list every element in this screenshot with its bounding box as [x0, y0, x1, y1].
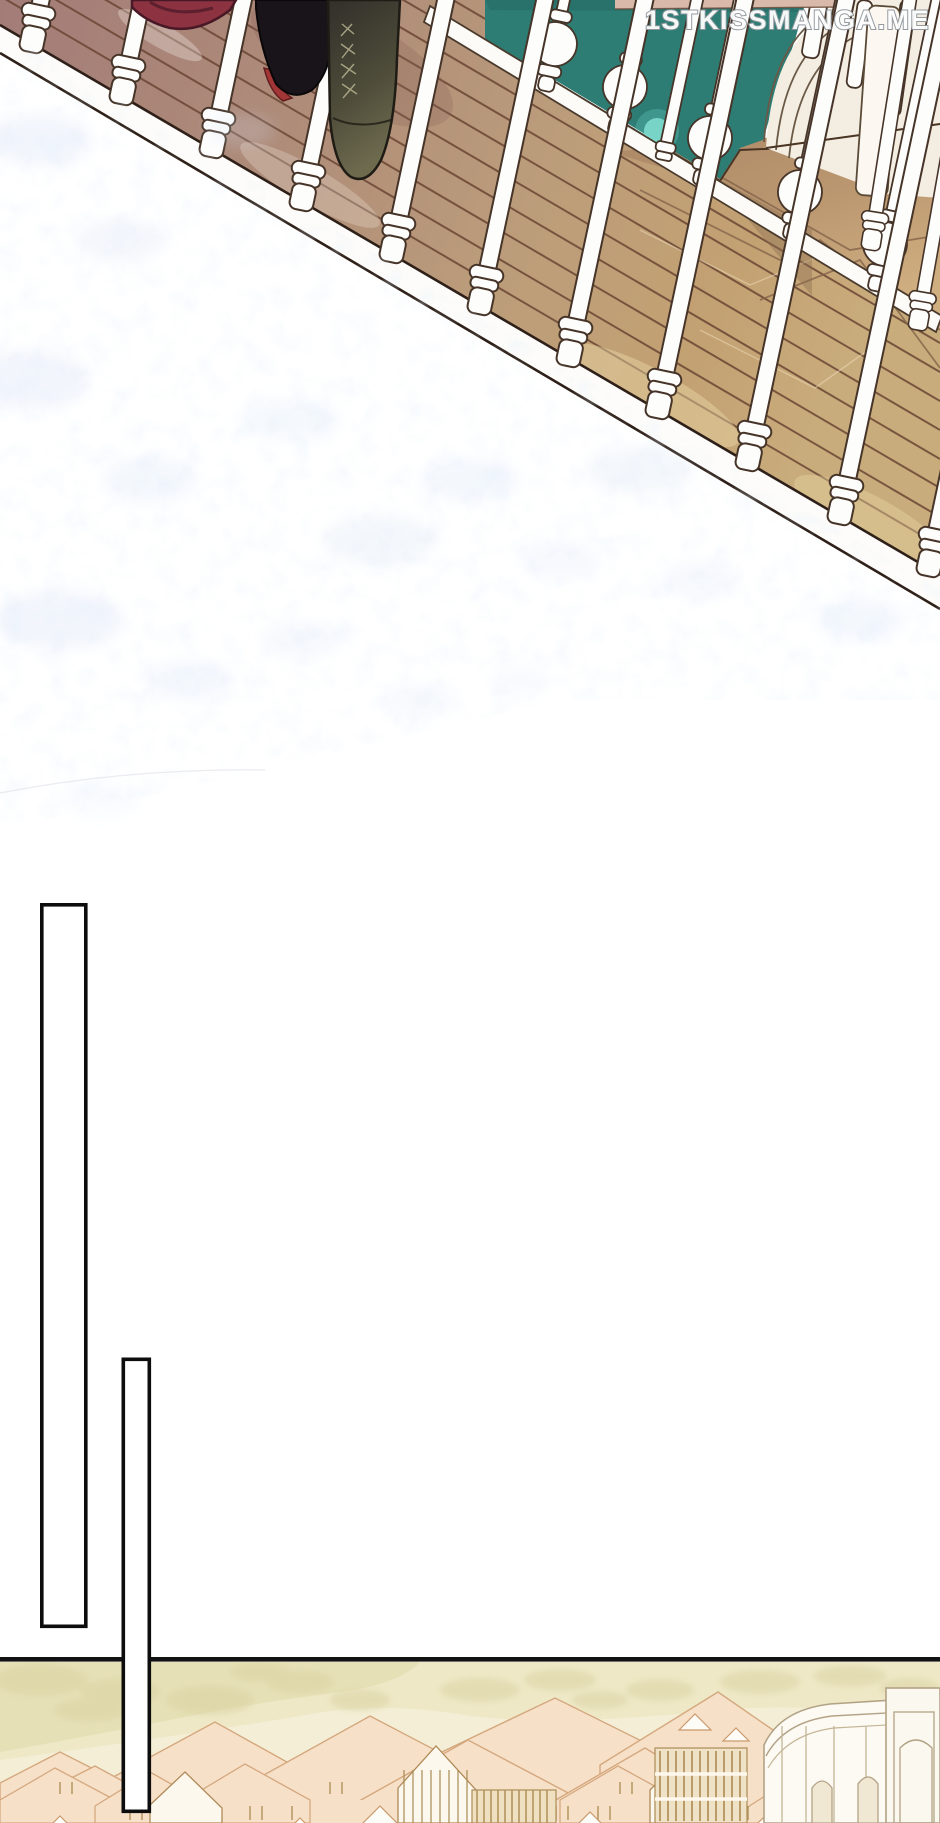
- svg-text:1STKISSMANGA.ME: 1STKISSMANGA.ME: [645, 5, 930, 35]
